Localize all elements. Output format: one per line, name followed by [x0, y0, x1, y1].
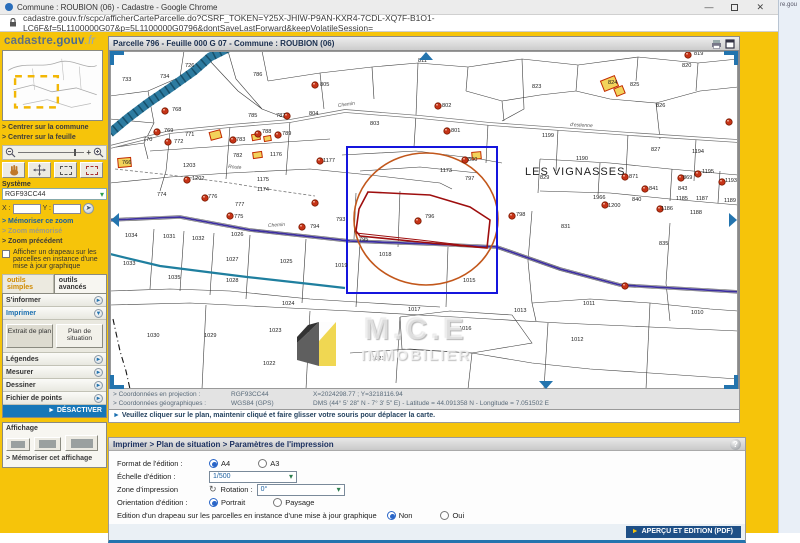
display-size-small-button[interactable]: [6, 438, 30, 451]
fichier-points-row[interactable]: Fichier de points ►: [3, 392, 106, 405]
screen: re.gou Commune : ROUBION (06) - Cadastre…: [0, 0, 800, 533]
parcel-label: 835: [659, 241, 668, 247]
geographic-coords-value: DMS (44° 5' 28" N - 7° 3' 5" E) - Latitu…: [313, 399, 549, 408]
parcel-label: 787: [276, 113, 285, 119]
parcel-label: 1029: [204, 333, 216, 339]
system-label: Système: [2, 181, 107, 188]
print-settings-panel: Imprimer > Plan de situation > Paramètre…: [108, 437, 746, 543]
parcel-label: 840: [632, 197, 641, 203]
parcel-boundary: [110, 289, 440, 307]
parcel-label: 1030: [147, 333, 159, 339]
pan-east-arrow[interactable]: [729, 213, 737, 227]
rotation-select[interactable]: 0° ▾: [257, 484, 345, 496]
parcel-label: 796: [425, 214, 434, 220]
parcel-label: 1177: [323, 158, 335, 164]
flag-checkbox[interactable]: [2, 250, 10, 258]
mesurer-row[interactable]: Mesurer ►: [3, 366, 106, 379]
cadastre-logo: cadastre.gouv.fr: [2, 33, 107, 50]
pan-south-arrow[interactable]: [539, 381, 553, 389]
parcel-boundary: [262, 51, 268, 81]
map-corner-bracket: [724, 53, 736, 65]
footpath: [115, 169, 315, 196]
parcel-label: 793: [336, 217, 345, 223]
parcel-label: 782: [233, 153, 242, 159]
rotate-icon[interactable]: ↻: [209, 484, 217, 495]
plan-de-situation-button[interactable]: Plan de situation: [56, 324, 103, 348]
parcel-label: 1015: [463, 278, 475, 284]
x-input[interactable]: [13, 204, 41, 214]
projection-system: RGF93CC44: [231, 390, 313, 399]
browser-tab-title: Commune : ROUBION (06) - Cadastre - Goog…: [17, 3, 218, 12]
map-help-message: ► Veuillez cliquer sur le plan, mainteni…: [108, 410, 740, 423]
parcel-label: 1200: [608, 203, 620, 209]
maximize-icon[interactable]: [731, 4, 738, 11]
parcel-label: 1025: [280, 259, 292, 265]
parcel-label: 788: [262, 129, 271, 135]
parcel-label: 1199: [542, 133, 554, 139]
parcel-boundary: [446, 247, 448, 307]
parcel-marker: [622, 283, 628, 289]
radio-a4[interactable]: [209, 459, 218, 468]
parcel-boundary: [416, 63, 418, 115]
sinformer-row[interactable]: S'informer ►: [3, 294, 106, 307]
parcel-boundary: [670, 169, 672, 201]
map-titlebar: Parcelle 796 - Feuille 000 G 07 - Commun…: [108, 36, 740, 51]
parcel-boundary: [576, 65, 578, 91]
parcel-label: 1190: [576, 156, 588, 162]
flag-print-label: Edition d'un drapeau sur les parcelles e…: [117, 511, 377, 520]
a3-label: A3: [270, 459, 279, 468]
zoom-control: +: [2, 145, 107, 160]
address-bar[interactable]: cadastre.gouv.fr/scpc/afficherCarteParce…: [0, 15, 778, 32]
parcel-marker: [726, 119, 732, 125]
parcel-label: 827: [651, 147, 660, 153]
projection-coords-value: X=2024298.77 ; Y=3218116.94: [313, 390, 403, 399]
parcel-marker: [162, 108, 168, 114]
parcel-marker: [299, 224, 305, 230]
parcel-boundary: [532, 299, 738, 311]
parcel-label: 801: [451, 128, 460, 134]
affichage-label: Affichage: [6, 425, 103, 432]
geographic-coords-label: > Coordonnées géographiques :: [113, 399, 231, 408]
zoom-rect-tool[interactable]: [54, 162, 77, 178]
parcel-label: 826: [656, 103, 665, 109]
parcel-boundary: [466, 91, 576, 101]
parcel-label: 734: [160, 74, 169, 80]
zone-row: Zone d'impression ↻ Rotation : 0° ▾: [117, 483, 737, 496]
zoom-out-icon[interactable]: [5, 147, 16, 158]
building: [253, 151, 263, 158]
parcel-label: 1187: [696, 196, 708, 202]
close-icon[interactable]: ✕: [756, 2, 764, 13]
radio-paysage[interactable]: [273, 498, 282, 507]
parcel-label: 1202: [192, 176, 204, 182]
message-arrow-icon: ►: [113, 412, 122, 419]
paysage-label: Paysage: [285, 498, 314, 507]
parcel-marker: [444, 128, 450, 134]
print-zone-rect[interactable]: [347, 147, 497, 293]
parcel-label: 1013: [514, 308, 526, 314]
parcel-label: 1176: [270, 152, 282, 158]
parcel-boundary: [636, 57, 638, 81]
parcel-label: 783: [236, 137, 245, 143]
parcel-boundary: [718, 171, 720, 203]
radio-portrait[interactable]: [209, 498, 218, 507]
flag-label: Afficher un drapeau sur les parcelles en…: [13, 249, 107, 270]
parcel-marker: [642, 186, 648, 192]
parcel-marker: [415, 218, 421, 224]
parcel-boundary: [626, 134, 628, 175]
parcel-label: 1188: [690, 210, 702, 216]
parcel-label: 871: [629, 174, 638, 180]
extrait-de-plan-button[interactable]: Extrait de plan: [6, 324, 53, 348]
y-input[interactable]: [53, 204, 81, 214]
projection-select[interactable]: RGF93CC44 ▾: [2, 188, 107, 200]
parcel-boundary: [400, 311, 532, 353]
parcel-marker: [165, 139, 171, 145]
parcel-label: 726: [185, 63, 194, 69]
memorize-display-link[interactable]: > Mémoriser cet affichage: [6, 454, 103, 464]
parcel-label: 1193: [725, 178, 737, 184]
orientation-label: Orientation d'édition :: [117, 498, 209, 507]
parcel-label: 803: [370, 121, 379, 127]
parcel-marker: [184, 177, 190, 183]
pan-move-tool[interactable]: [28, 162, 51, 178]
parcel-label: 1023: [269, 328, 281, 334]
coordinates-entry: X : Y : ➤: [2, 203, 107, 214]
affichage-panel: Affichage > Mémoriser cet affichage: [2, 422, 107, 468]
help-icon[interactable]: ?: [730, 439, 741, 450]
commune-boundary: [113, 319, 130, 389]
parcel-label: 1032: [192, 236, 204, 242]
parcel-boundary: [306, 311, 310, 389]
expand-arrow-icon[interactable]: ►: [94, 394, 103, 403]
center-feuille-link[interactable]: > Centrer sur la feuille: [2, 133, 107, 143]
parcel-label: 1185: [676, 196, 688, 202]
orientation-row: Orientation d'édition : Portrait Paysage: [117, 496, 737, 509]
zoom-in-icon[interactable]: [93, 147, 104, 158]
parcel-boundary: [350, 349, 738, 379]
parcel-label: 789: [282, 131, 291, 137]
flag-print-row: Edition d'un drapeau sur les parcelles e…: [117, 509, 737, 522]
background-window: re.gou: [778, 0, 800, 533]
button-arrow-icon: ►: [632, 528, 639, 535]
map-corner-bracket: [112, 375, 124, 387]
map-canvas[interactable]: 7267347337868057857878048118238028011199…: [108, 51, 740, 389]
map-title: Parcelle 796 - Feuille 000 G 07 - Commun…: [113, 39, 334, 48]
format-row: Format de l'édition : A4 A3: [117, 457, 737, 470]
pan-west-arrow[interactable]: [111, 213, 119, 227]
sidebar: cadastre.gouv.fr > Centrer sur la commun…: [2, 33, 107, 468]
map-corner-bracket: [112, 53, 124, 65]
parcel-marker: [695, 171, 701, 177]
parcel-boundary: [180, 231, 184, 291]
parcel-boundary: [372, 67, 374, 99]
parcel-label: 1031: [163, 234, 175, 240]
parcel-label: 1186: [661, 206, 673, 212]
parcel-marker: [255, 131, 261, 137]
parcel-boundary: [502, 101, 504, 121]
projection-coords-label: > Coordonnées en projection :: [113, 390, 231, 399]
selected-parcel-outline: [356, 192, 490, 248]
parcel-label: 802: [442, 103, 451, 109]
parcel-marker: [312, 82, 318, 88]
previous-zoom-link[interactable]: > Zoom précédent: [2, 237, 107, 247]
parcel-label: 831: [561, 224, 570, 230]
parcel-label: 768: [172, 107, 181, 113]
parcel-label: 824: [608, 80, 617, 86]
parcel-label: 1028: [226, 278, 238, 284]
parcel-label: 769: [164, 128, 173, 134]
parcel-label: 869: [683, 175, 692, 181]
imprimer-subpanel: Extrait de plan Plan de situation: [3, 320, 106, 353]
parcel-boundary: [320, 73, 324, 109]
url-text: cadastre.gouv.fr/scpc/afficherCarteParce…: [23, 13, 778, 33]
parcel-boundary: [228, 51, 262, 109]
parcel-label: 1017: [408, 307, 420, 313]
parcel-boundary: [246, 235, 250, 299]
building: [209, 130, 222, 141]
parcel-label: 772: [174, 139, 183, 145]
legendes-row[interactable]: Légendes ►: [3, 353, 106, 366]
page-background: cadastre.gouv.fr > Centrer sur la commun…: [0, 32, 778, 533]
parcel-label: 841: [649, 186, 658, 192]
parcel-label: 785: [248, 113, 257, 119]
parcel-boundary: [666, 223, 670, 321]
imprimer-row[interactable]: Imprimer ▼: [3, 307, 106, 320]
parcel-label: 805: [320, 82, 329, 88]
scale-select[interactable]: 1/500 ▾: [209, 471, 297, 483]
parcel-boundary: [528, 211, 536, 321]
window-restore-icon[interactable]: [725, 39, 735, 49]
minimize-icon[interactable]: —: [704, 2, 713, 12]
parcel-boundary: [556, 129, 558, 171]
parcel-label: 825: [630, 82, 639, 88]
parcel-label: 1203: [183, 163, 195, 169]
highlighted-road: [110, 217, 738, 292]
apercu-edition-pdf-button[interactable]: ►APERÇU ET EDITION (PDF): [626, 526, 741, 538]
parcel-label: 1034: [125, 233, 137, 239]
parcel-marker: [227, 213, 233, 219]
road-label: Chemin: [337, 101, 355, 109]
parcel-label: 794: [310, 224, 319, 230]
parcel-marker: [312, 200, 318, 206]
parcel-label: 1019: [335, 263, 347, 269]
parcel-label: 1195: [702, 169, 714, 175]
parcel-label: 823: [532, 84, 541, 90]
parcel-boundary: [210, 61, 288, 119]
parcel-label: 1174: [257, 187, 269, 193]
map-tools: [2, 162, 107, 178]
zoom-slider[interactable]: [18, 152, 84, 153]
parcel-label: 1022: [263, 361, 275, 367]
overview-map[interactable]: [2, 50, 103, 121]
map-corner-bracket: [724, 375, 736, 387]
background-window-text: re.gou: [780, 2, 797, 8]
radio-oui[interactable]: [440, 511, 449, 520]
parcel-boundary: [202, 305, 206, 389]
parcel-label: 1173: [440, 168, 452, 174]
parcel-label: 1189: [724, 198, 736, 204]
x-label: X :: [2, 205, 11, 212]
parcel-label: 786: [253, 72, 262, 78]
zoom-extent-tool[interactable]: [80, 162, 103, 178]
parcel-marker: [275, 132, 281, 138]
center-commune-link[interactable]: > Centrer sur la commune: [2, 123, 107, 133]
parcel-label: 1027: [226, 257, 238, 263]
tab-favicon: [5, 3, 13, 11]
parcel-boundary: [646, 303, 650, 389]
lock-icon: [9, 18, 17, 29]
parcel-marker: [435, 103, 441, 109]
parcel-label: 775: [234, 214, 243, 220]
geographic-system: WGS84 (GPS): [231, 399, 313, 408]
desactiver-button[interactable]: ► DÉSACTIVER: [3, 405, 106, 417]
parcel-label: 1021: [372, 356, 384, 362]
format-label: Format de l'édition :: [117, 459, 209, 468]
parcel-label: 1011: [583, 301, 595, 307]
radio-non[interactable]: [387, 511, 396, 520]
parcel-boundary: [286, 121, 290, 175]
parcel-label: 800: [468, 157, 477, 163]
parcel-label: 1026: [231, 232, 243, 238]
parcel-label: 770: [143, 137, 152, 143]
parcel-boundary: [356, 243, 360, 307]
parcel-label: 797: [465, 176, 474, 182]
parcel-label: 777: [235, 202, 244, 208]
parcel-boundary: [414, 115, 416, 147]
parcel-boundary: [502, 59, 524, 121]
chevron-down-icon: ▾: [337, 485, 341, 494]
chevron-down-icon: ▾: [100, 190, 104, 199]
parcel-boundary: [576, 87, 738, 103]
parcel-boundary: [150, 229, 154, 289]
y-label: Y :: [43, 205, 51, 212]
flag-option: Afficher un drapeau sur les parcelles en…: [2, 249, 107, 270]
tools-tabs: outils simples outils avancés: [2, 274, 107, 293]
parcel-boundary: [544, 323, 548, 389]
parcel-label: 1033: [123, 261, 135, 267]
parcel-boundary: [398, 191, 400, 247]
zoom-slider-thumb[interactable]: [74, 149, 76, 156]
parcel-label: 776: [208, 194, 217, 200]
print-panel-header: Imprimer > Plan de situation > Paramètre…: [109, 438, 745, 451]
a4-label: A4: [221, 459, 230, 468]
parcel-label: 843: [678, 186, 687, 192]
memorized-zoom-link: > Zoom mémorisé: [2, 227, 107, 237]
parcel-label: 766: [122, 160, 131, 166]
pan-north-arrow[interactable]: [419, 52, 433, 60]
parcel-label: 1024: [282, 301, 294, 307]
parcel-marker: [685, 52, 691, 58]
road-label: Route: [228, 164, 242, 171]
road-label: Chemin: [268, 222, 286, 229]
print-icon[interactable]: [711, 39, 722, 49]
road-label: d'estienne: [570, 122, 593, 129]
scale-label: Échelle d'édition :: [117, 472, 209, 481]
go-coordinates-button[interactable]: ➤: [83, 203, 94, 214]
display-size-large-button[interactable]: [65, 435, 98, 451]
parcel-label: 820: [682, 63, 691, 69]
parcel-boundary: [468, 353, 472, 389]
coordinates-statusbar: > Coordonnées en projection : RGF93CC44 …: [108, 389, 740, 410]
expand-arrow-icon[interactable]: ►: [94, 381, 103, 390]
zoom-plus[interactable]: +: [86, 148, 91, 157]
parcel-label: 804: [309, 111, 318, 117]
tab-outils-simples[interactable]: outils simples: [2, 274, 54, 293]
parcel-boundary: [210, 233, 214, 295]
parcel-label: 1966: [593, 195, 605, 201]
parcel-label: 1018: [379, 252, 391, 258]
tools-accordion: S'informer ► Imprimer ▼ Extrait de plan …: [2, 293, 107, 418]
building: [264, 135, 272, 141]
parcel-label: 1035: [168, 275, 180, 281]
zone-label: Zone d'impression: [117, 485, 209, 494]
parcel-boundary: [110, 303, 738, 331]
dessiner-row[interactable]: Dessiner ►: [3, 379, 106, 392]
tab-outils-avances[interactable]: outils avancés: [54, 274, 107, 293]
parcel-boundary: [466, 67, 468, 91]
parcel-boundary: [302, 239, 306, 303]
pan-hand-tool[interactable]: [2, 162, 25, 178]
place-label: LES VIGNASSES: [525, 166, 625, 178]
parcel-boundary: [696, 63, 698, 91]
river: [110, 51, 238, 133]
parcel-label: 1012: [571, 337, 583, 343]
print-panel-footer: ►APERÇU ET EDITION (PDF): [109, 524, 745, 540]
parcel-label: 733: [122, 77, 131, 83]
parcel-boundary: [226, 126, 230, 179]
parcel-boundary: [268, 57, 738, 81]
chevron-down-icon: ▾: [289, 472, 293, 481]
parcel-label: 1010: [691, 310, 703, 316]
scale-row: Échelle d'édition : 1/500 ▾: [117, 470, 737, 483]
memorize-zoom-link[interactable]: > Mémoriser ce zoom: [2, 217, 107, 227]
parcel-label: 798: [516, 212, 525, 218]
display-size-medium-button[interactable]: [34, 437, 61, 451]
parcel-label: 1016: [459, 326, 471, 332]
parcel-label: 771: [185, 132, 194, 138]
parcel-marker: [509, 213, 515, 219]
expand-arrow-icon[interactable]: ►: [94, 368, 103, 377]
parcel-boundary: [486, 124, 488, 163]
rotation-label: Rotation :: [221, 485, 253, 494]
expand-arrow-icon[interactable]: ►: [94, 296, 103, 305]
parcel-label: 774: [157, 192, 166, 198]
print-breadcrumb: Imprimer > Plan de situation > Paramètre…: [113, 440, 334, 449]
portrait-label: Portrait: [221, 498, 245, 507]
oui-label: Oui: [452, 511, 464, 520]
map-window: Parcelle 796 - Feuille 000 G 07 - Commun…: [108, 36, 740, 423]
expand-arrow-icon[interactable]: ►: [94, 355, 103, 364]
parcel-label: 1194: [692, 149, 704, 155]
non-label: Non: [399, 511, 413, 520]
radio-a3[interactable]: [258, 459, 267, 468]
collapse-arrow-icon[interactable]: ▼: [94, 309, 103, 318]
parcel-marker: [154, 129, 160, 135]
parcel-label: 1175: [257, 177, 269, 183]
parcel-label: 795: [359, 237, 368, 243]
